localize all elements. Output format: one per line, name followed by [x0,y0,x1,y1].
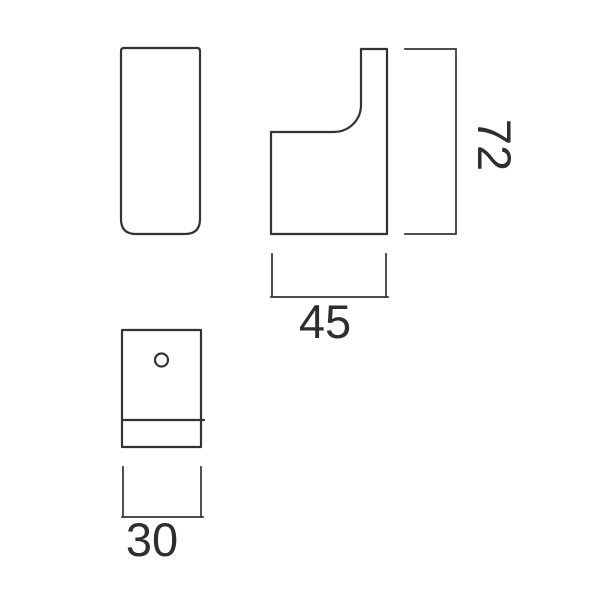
depth-dimension-label: 45 [299,295,351,348]
width-dimension-bracket [122,467,203,517]
mounting-hole-circle [155,354,168,367]
product-views-group [121,48,387,447]
width-dimension-label: 30 [126,513,178,566]
technical-drawing-area: 72 45 30 [0,0,600,600]
plan-view-outline [122,330,201,447]
dimension-labels-group: 72 45 30 [126,119,521,566]
front-view-outline [121,48,200,234]
side-profile-outline [271,49,387,234]
plan-view-group [122,330,204,447]
technical-drawing-canvas: 72 45 30 [0,0,600,600]
height-dimension-label: 72 [468,119,521,171]
height-dimension-bracket [405,49,456,234]
depth-dimension-bracket [271,254,388,297]
